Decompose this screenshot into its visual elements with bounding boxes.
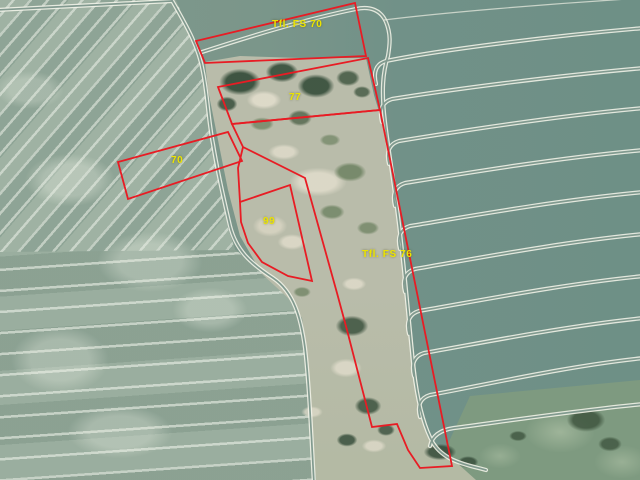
label-tfl-fs-70: Tfl. FS 70 <box>272 19 322 30</box>
aerial-photo-map: Tfl. FS 70 77 70 99 Tfl. FS 76 <box>0 0 640 480</box>
label-77: 77 <box>289 92 301 103</box>
label-70: 70 <box>171 155 183 166</box>
map-labels: Tfl. FS 70 77 70 99 Tfl. FS 76 <box>0 0 640 480</box>
label-99: 99 <box>263 216 275 227</box>
label-tfl-fs-76: Tfl. FS 76 <box>362 249 412 260</box>
